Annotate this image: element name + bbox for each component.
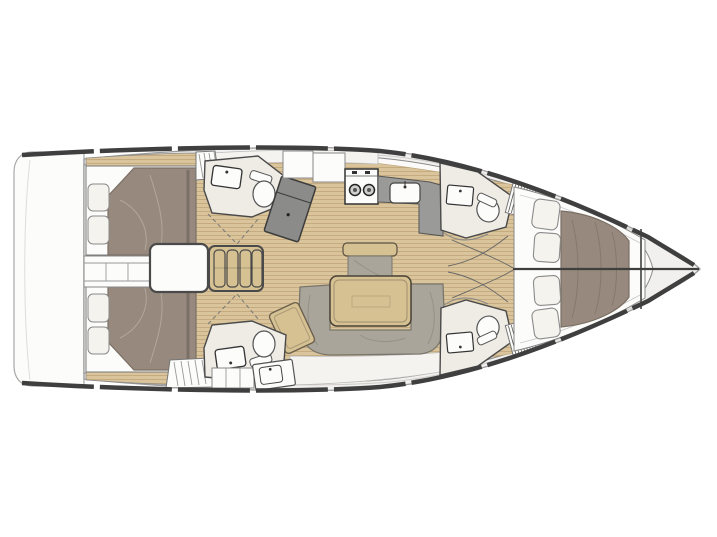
aft-corridor-steps bbox=[84, 256, 150, 287]
sink bbox=[215, 346, 247, 370]
vanity-drawers bbox=[212, 368, 254, 388]
companionway-ladder bbox=[209, 246, 263, 291]
pillow bbox=[88, 327, 109, 354]
pillow bbox=[88, 184, 109, 211]
engine-box bbox=[150, 244, 208, 292]
pillow bbox=[88, 294, 109, 322]
galley-locker bbox=[313, 153, 345, 182]
aft-cabin-bottom bbox=[86, 283, 215, 388]
sink bbox=[211, 165, 243, 189]
pillow bbox=[88, 216, 109, 244]
galley-locker bbox=[283, 151, 313, 178]
sink bbox=[446, 185, 474, 206]
pillow bbox=[531, 307, 561, 339]
pillow bbox=[533, 232, 561, 263]
pillow bbox=[531, 198, 561, 230]
vanity-sink-cabinet bbox=[252, 359, 295, 390]
pillow bbox=[533, 275, 561, 306]
sink bbox=[446, 332, 474, 353]
salon-table bbox=[330, 276, 411, 326]
salon-bench-back bbox=[343, 243, 397, 256]
floor-plan-canvas bbox=[0, 0, 717, 537]
yacht-deck-plan bbox=[0, 0, 717, 537]
stove bbox=[345, 169, 378, 204]
galley-sink bbox=[390, 181, 420, 203]
